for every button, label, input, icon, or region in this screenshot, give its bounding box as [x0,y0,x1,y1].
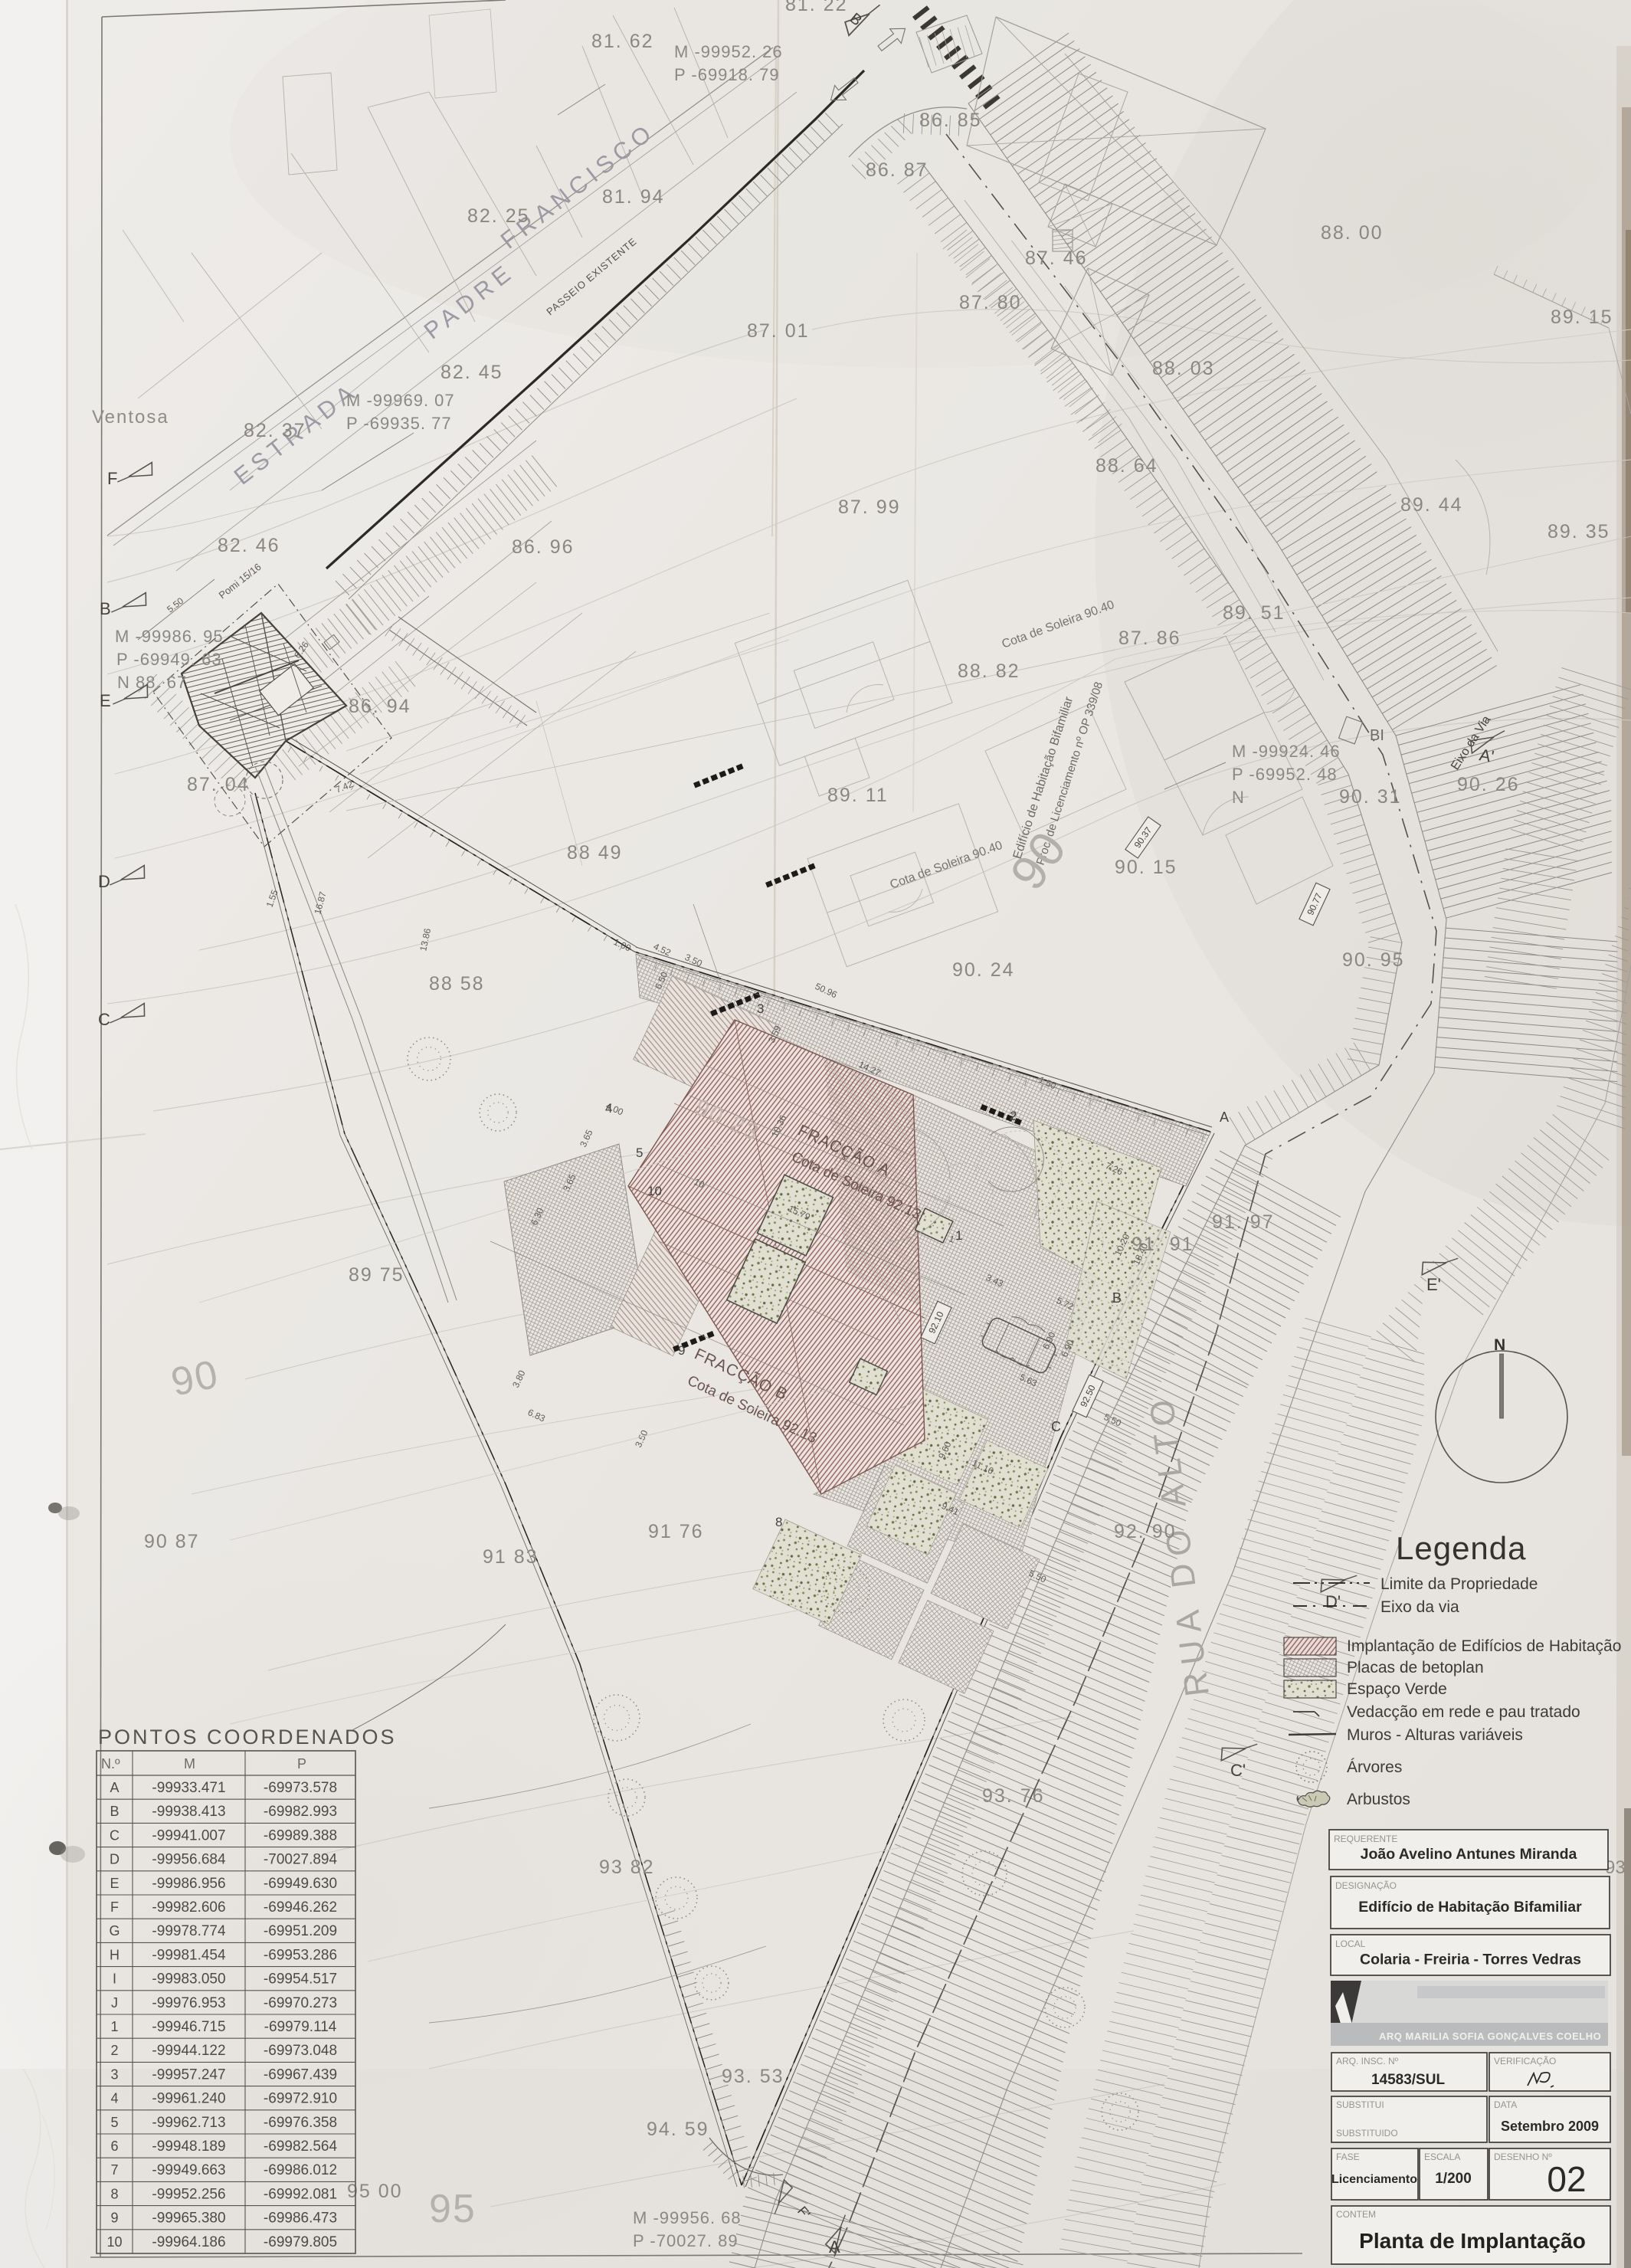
svg-text:D: D [110,1852,120,1867]
svg-text:-99952.256: -99952.256 [152,2186,225,2202]
svg-text:88. 64: 88. 64 [1096,455,1158,477]
svg-text:Árvores: Árvores [1347,1758,1402,1776]
svg-text:4: 4 [110,2091,118,2106]
svg-text:-99986.956: -99986.956 [152,1876,225,1892]
svg-text:-99964.186: -99964.186 [152,2234,225,2250]
svg-text:J: J [111,1995,118,2011]
svg-text:86. 96: 86. 96 [512,536,575,558]
svg-text:87. 01: 87. 01 [747,320,810,342]
svg-text:90. 95: 90. 95 [1342,949,1405,971]
svg-text:ARQ. INSC. Nº: ARQ. INSC. Nº [1336,2056,1399,2066]
svg-text:-99961.240: -99961.240 [152,2091,225,2107]
svg-text:ARQ MARILIA SOFIA GONÇALVES CO: ARQ MARILIA SOFIA GONÇALVES COELHO [1379,2030,1601,2042]
svg-text:10: 10 [647,1184,662,1198]
svg-text:91 76: 91 76 [648,1521,704,1542]
svg-text:DESIGNAÇÃO: DESIGNAÇÃO [1335,1880,1397,1891]
svg-text:81. 62: 81. 62 [591,31,654,52]
svg-text:-69953.286: -69953.286 [264,1947,337,1963]
svg-text:BI: BI [1370,727,1384,744]
svg-text:6: 6 [110,2139,118,2154]
svg-text:87. 80: 87. 80 [959,292,1022,313]
svg-text:-69973.578: -69973.578 [264,1780,337,1796]
svg-text:3: 3 [110,2066,118,2082]
svg-text:-99976.953: -99976.953 [152,1995,225,2011]
svg-text:Muros - Alturas variáveis: Muros - Alturas variáveis [1347,1726,1523,1744]
svg-text:90 87: 90 87 [144,1531,200,1552]
svg-text:1: 1 [955,1228,962,1243]
svg-text:9: 9 [110,2211,118,2226]
svg-text:B: B [110,1804,119,1819]
svg-text:Implantação de Edifícios de Ha: Implantação de Edifícios de Habitação [1347,1637,1621,1655]
svg-text:-69982.564: -69982.564 [264,2139,338,2155]
svg-text:B: B [100,599,111,618]
svg-text:89. 44: 89. 44 [1400,494,1463,516]
svg-text:Espaço Verde: Espaço Verde [1347,1680,1447,1698]
svg-text:-99946.715: -99946.715 [152,2019,225,2035]
svg-text:-99956.684: -99956.684 [152,1852,226,1868]
svg-text:7: 7 [110,2162,118,2178]
svg-text:88. 00: 88. 00 [1321,222,1384,244]
svg-text:B: B [1112,1290,1122,1306]
svg-text:-69949.630: -69949.630 [264,1876,337,1892]
svg-text:8: 8 [775,1515,782,1529]
svg-text:M -99952. 26: M -99952. 26 [674,42,783,61]
svg-text:94. 59: 94. 59 [647,2119,709,2140]
svg-text:93. 53: 93. 53 [722,2066,784,2087]
svg-text:-69946.262: -69946.262 [264,1899,337,1916]
svg-text:G: G [109,1923,120,1939]
svg-text:-69970.273: -69970.273 [264,1995,337,2011]
svg-text:1: 1 [110,2019,118,2034]
svg-text:-69951.209: -69951.209 [264,1923,337,1939]
svg-text:Licenciamento: Licenciamento [1331,2173,1417,2186]
svg-text:Limite da Propriedade: Limite da Propriedade [1380,1575,1538,1593]
svg-text:M: M [184,1756,195,1771]
svg-text:5: 5 [110,2115,118,2130]
svg-text:Edifício de Habitação Bifamili: Edifício de Habitação Bifamiliar [1358,1899,1582,1916]
svg-text:SUBSTITUIDO: SUBSTITUIDO [1336,2128,1398,2139]
svg-text:-69967.439: -69967.439 [264,2066,337,2083]
svg-text:91 83: 91 83 [483,1546,539,1568]
svg-text:M -99986. 95: M -99986. 95 [115,627,224,646]
svg-text:90. 31: 90. 31 [1339,786,1402,808]
svg-text:M -99924. 46: M -99924. 46 [1232,742,1341,761]
svg-text:Colaria - Freiria - Torres Ved: Colaria - Freiria - Torres Vedras [1360,1952,1581,1968]
svg-text:-99944.122: -99944.122 [152,2043,225,2059]
svg-text:A: A [110,1780,119,1795]
svg-text:Arbustos: Arbustos [1347,1791,1410,1808]
svg-text:P -69952. 48: P -69952. 48 [1232,765,1338,784]
svg-text:ESCALA: ESCALA [1424,2152,1460,2162]
svg-text:M -99956. 68: M -99956. 68 [633,2208,742,2227]
svg-text:D: D [98,872,110,891]
svg-text:Planta de Implantação: Planta de Implantação [1359,2229,1586,2253]
svg-text:87. 04: 87. 04 [187,774,250,795]
svg-text:Placas de betoplan: Placas de betoplan [1347,1659,1484,1676]
svg-text:88 49: 88 49 [567,842,623,864]
svg-text:2: 2 [110,2043,118,2058]
svg-text:91. 97: 91. 97 [1212,1211,1275,1233]
svg-text:REQUERENTE: REQUERENTE [1334,1834,1397,1844]
svg-text:Setembro 2009: Setembro 2009 [1501,2119,1599,2134]
svg-text:N: N [1232,788,1245,807]
svg-text:93. 76: 93. 76 [982,1785,1045,1807]
svg-text:-69986.012: -69986.012 [264,2162,337,2178]
svg-text:-99981.454: -99981.454 [152,1947,226,1963]
svg-text:João Avelino Antunes Miranda: João Avelino Antunes Miranda [1361,1846,1577,1863]
svg-text:90. 15: 90. 15 [1115,857,1177,878]
svg-text:9: 9 [678,1343,685,1358]
svg-text:3: 3 [757,1001,764,1016]
svg-text:95: 95 [429,2187,477,2231]
svg-text:P -69918. 79: P -69918. 79 [674,65,780,84]
svg-text:87. 86: 87. 86 [1118,628,1181,649]
svg-text:Ventosa: Ventosa [92,407,169,428]
svg-text:N: N [1494,1336,1505,1354]
svg-text:SUBSTITUI: SUBSTITUI [1336,2099,1384,2110]
svg-text:H: H [110,1947,120,1962]
svg-text:89. 15: 89. 15 [1551,306,1613,328]
svg-text:81. 22: 81. 22 [785,0,848,15]
svg-text:-69979.805: -69979.805 [264,2234,337,2250]
svg-text:89. 11: 89. 11 [827,785,889,806]
svg-text:82. 37: 82. 37 [244,420,306,441]
svg-text:89. 35: 89. 35 [1547,521,1610,542]
svg-text:I: I [113,1971,116,1987]
svg-text:C: C [1051,1419,1061,1434]
svg-text:C: C [110,1827,120,1843]
svg-text:C': C' [1230,1761,1246,1780]
svg-text:10: 10 [106,2234,122,2250]
svg-text:-99938.413: -99938.413 [152,1804,225,1820]
svg-text:82. 25: 82. 25 [467,205,530,227]
svg-text:-69986.473: -69986.473 [264,2211,337,2227]
svg-text:82. 45: 82. 45 [441,362,503,383]
svg-text:8: 8 [110,2186,118,2201]
svg-text:-99949.663: -99949.663 [152,2162,225,2178]
svg-text:-99982.606: -99982.606 [152,1899,225,1916]
svg-text:F: F [107,469,117,488]
svg-text:C: C [98,1010,110,1029]
svg-text:-70027.894: -70027.894 [264,1852,338,1868]
svg-text:E': E' [1426,1275,1441,1294]
svg-text:VERIFICAÇÃO: VERIFICAÇÃO [1494,2056,1556,2066]
svg-text:-69989.388: -69989.388 [264,1827,337,1844]
svg-text:P: P [297,1756,306,1771]
svg-text:E: E [110,1876,119,1891]
svg-text:D': D' [1325,1592,1341,1611]
svg-text:2: 2 [1010,1109,1017,1123]
svg-text:89 75: 89 75 [349,1264,404,1286]
svg-text:86. 87: 86. 87 [866,159,928,181]
svg-text:LOCAL: LOCAL [1335,1939,1366,1949]
svg-text:P -69935. 77: P -69935. 77 [346,414,452,433]
svg-text:DATA: DATA [1494,2099,1517,2110]
svg-text:-99933.471: -99933.471 [152,1780,225,1796]
svg-text:88. 82: 88. 82 [958,660,1020,682]
svg-text:90. 24: 90. 24 [952,959,1015,981]
svg-text:-69992.081: -69992.081 [264,2186,337,2202]
svg-text:88 58: 88 58 [429,973,485,995]
svg-text:-99948.189: -99948.189 [152,2139,225,2155]
svg-text:-69976.358: -69976.358 [264,2115,337,2131]
svg-text:F: F [110,1899,119,1915]
svg-text:N 88. 67: N 88. 67 [117,673,187,692]
svg-text:02: 02 [1547,2159,1586,2199]
svg-text:Vedacção em rede e pau tratado: Vedacção em rede e pau tratado [1347,1703,1580,1721]
svg-text:A: A [1220,1109,1229,1125]
svg-text:A: A [829,2237,840,2257]
svg-text:-99983.050: -99983.050 [152,1971,225,1988]
svg-text:14583/SUL: 14583/SUL [1371,2072,1446,2088]
svg-text:E: E [100,691,111,710]
svg-text:DESENHO Nº: DESENHO Nº [1494,2152,1552,2162]
svg-text:81. 94: 81. 94 [602,186,665,208]
svg-text:PONTOS COORDENADOS: PONTOS COORDENADOS [98,1726,397,1749]
svg-text:4: 4 [605,1101,612,1116]
svg-text:5: 5 [636,1145,643,1160]
svg-text:89. 51: 89. 51 [1223,602,1285,624]
svg-text:92. 90: 92. 90 [1114,1521,1177,1542]
svg-text:M -99969. 07: M -99969. 07 [346,391,455,410]
svg-text:-69972.910: -69972.910 [264,2091,337,2107]
svg-text:-99962.713: -99962.713 [152,2115,225,2131]
svg-text:Legenda: Legenda [1396,1530,1527,1566]
svg-text:FASE: FASE [1336,2152,1360,2162]
svg-text:-69973.048: -69973.048 [264,2043,337,2059]
svg-text:82. 46: 82. 46 [218,535,280,556]
svg-text:-99965.380: -99965.380 [152,2211,225,2227]
svg-text:Eixo da via: Eixo da via [1380,1598,1459,1616]
svg-text:88. 03: 88. 03 [1152,358,1215,379]
svg-text:-69982.993: -69982.993 [264,1804,337,1820]
svg-text:93 82: 93 82 [599,1857,655,1878]
svg-text:1/200: 1/200 [1435,2171,1472,2187]
svg-text:-99941.007: -99941.007 [152,1827,225,1844]
svg-text:-99957.247: -99957.247 [152,2066,225,2083]
svg-text:P -70027. 89: P -70027. 89 [633,2231,739,2250]
svg-text:90. 26: 90. 26 [1457,774,1520,795]
svg-text:87. 99: 87. 99 [838,497,901,518]
svg-text:-69979.114: -69979.114 [264,2019,337,2035]
svg-text:P -69949. 63: P -69949. 63 [116,650,222,669]
svg-text:86. 94: 86. 94 [349,696,411,717]
svg-text:87. 46: 87. 46 [1025,247,1088,269]
svg-text:-69954.517: -69954.517 [264,1971,337,1988]
svg-text:91. 91: 91. 91 [1132,1234,1194,1255]
svg-text:86. 85: 86. 85 [919,110,982,131]
svg-text:N.º: N.º [101,1756,120,1771]
svg-text:-99978.774: -99978.774 [152,1923,226,1939]
svg-text:CONTEM: CONTEM [1336,2209,1376,2220]
